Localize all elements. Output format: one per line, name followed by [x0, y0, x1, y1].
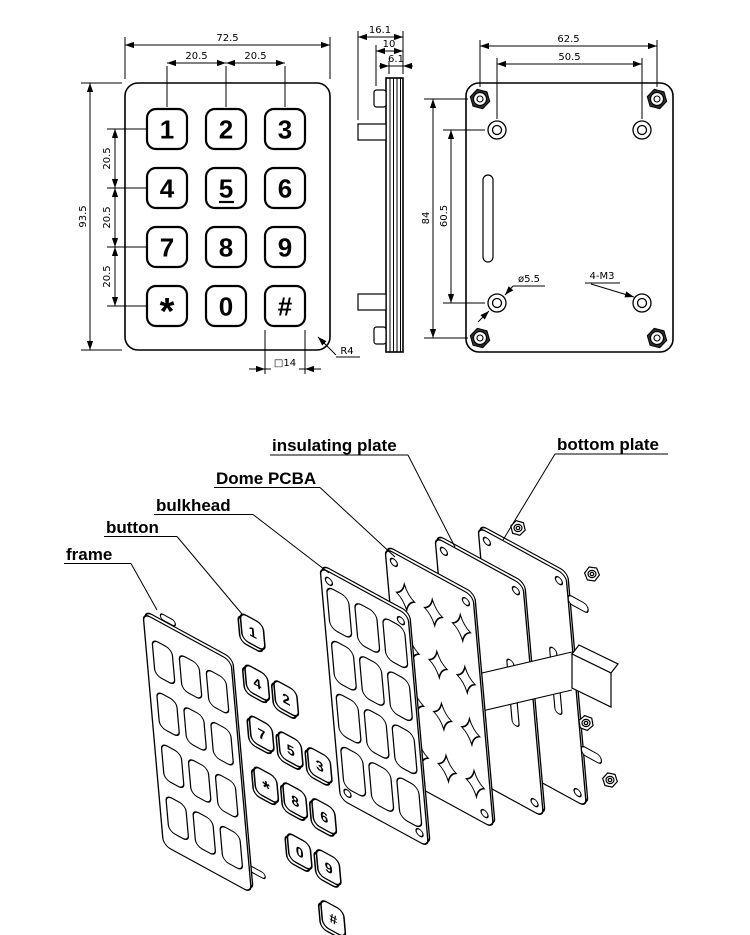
- svg-text:62.5: 62.5: [557, 34, 579, 45]
- svg-text:84: 84: [421, 212, 432, 225]
- dim-hole-span-v: 60.5: [439, 130, 485, 303]
- label-insulating-plate: insulating plate: [272, 436, 397, 455]
- hex-nut: [584, 567, 601, 582]
- frame-plate: [142, 603, 267, 902]
- back-slot: [483, 175, 493, 262]
- svg-text:20.5: 20.5: [185, 51, 207, 62]
- svg-text:4-M3: 4-M3: [590, 271, 615, 282]
- side-stud-bottom: [374, 327, 386, 344]
- front-view: 1 2 3 4 5 6 7 8 9 * 0 # 72.5: [78, 33, 360, 374]
- exploded-labels: frame button bulkhead Dome PCBA insulati…: [64, 435, 668, 614]
- svg-text:20.5: 20.5: [102, 206, 113, 228]
- dim-hole-span-h: 50.5: [497, 52, 642, 119]
- svg-text:6.1: 6.1: [388, 54, 404, 65]
- label-bulkhead: bulkhead: [156, 496, 231, 515]
- svg-text:20.5: 20.5: [102, 265, 113, 287]
- key-4: 4: [160, 174, 175, 204]
- svg-text:ø5.5: ø5.5: [518, 274, 540, 285]
- key-star: *: [160, 291, 175, 333]
- key-8: 8: [219, 233, 233, 263]
- key-2: 2: [219, 115, 233, 145]
- key-5: 5: [219, 174, 233, 204]
- hex-nut: [509, 520, 527, 537]
- svg-text:10: 10: [383, 39, 396, 50]
- key-hash: #: [278, 292, 293, 322]
- side-mount-tab-bottom: [358, 294, 386, 310]
- label-bottom-plate: bottom plate: [557, 435, 659, 454]
- svg-text:72.5: 72.5: [216, 33, 238, 44]
- dim-plate-stack: 6.1: [379, 54, 413, 74]
- svg-text:16.1: 16.1: [369, 25, 391, 36]
- drawing-canvas: 1 2 3 4 5 6 7 8 9 * 0 # 72.5: [0, 0, 750, 935]
- exploded-view: 1 2 3 4 5 6 7 8 9 * 0 #: [64, 435, 668, 935]
- dim-row-pitch: 20.5 20.5 20.5: [102, 129, 146, 306]
- svg-text:R4: R4: [340, 346, 353, 357]
- label-dome-pcba: Dome PCBA: [216, 469, 316, 488]
- keypad-technical-drawing: 1 2 3 4 5 6 7 8 9 * 0 # 72.5: [0, 0, 750, 935]
- key-9: 9: [278, 233, 292, 263]
- label-frame: frame: [66, 545, 112, 564]
- side-view: 16.1 10 6.1: [358, 25, 413, 352]
- key-3: 3: [278, 115, 292, 145]
- callout-hole-diameter: ø5.5: [478, 274, 545, 322]
- back-mounting-holes: [488, 121, 651, 312]
- svg-text:20.5: 20.5: [102, 147, 113, 169]
- svg-text:60.5: 60.5: [439, 205, 450, 227]
- key-7: 7: [160, 233, 174, 263]
- side-mount-tab-top: [358, 124, 386, 140]
- dim-col-pitch: 20.5 20.5: [167, 51, 285, 107]
- front-keys: 1 2 3 4 5 6 7 8 9 * 0 #: [147, 109, 305, 333]
- dim-key-size: □14: [249, 330, 321, 374]
- svg-text:20.5: 20.5: [244, 51, 266, 62]
- back-view: 62.5 50.5 84 60.5: [421, 34, 673, 352]
- key-6: 6: [278, 174, 292, 204]
- key-1: 1: [160, 115, 174, 145]
- callout-stud-spec: 4-M3: [585, 271, 634, 297]
- svg-text:93.5: 93.5: [78, 205, 89, 227]
- key-0: 0: [219, 292, 233, 322]
- svg-text:□14: □14: [274, 358, 296, 369]
- svg-text:50.5: 50.5: [558, 52, 580, 63]
- label-button: button: [106, 518, 159, 537]
- dim-overall-width: 72.5: [125, 33, 330, 79]
- hex-nut: [601, 772, 618, 788]
- side-stud-top: [374, 90, 386, 107]
